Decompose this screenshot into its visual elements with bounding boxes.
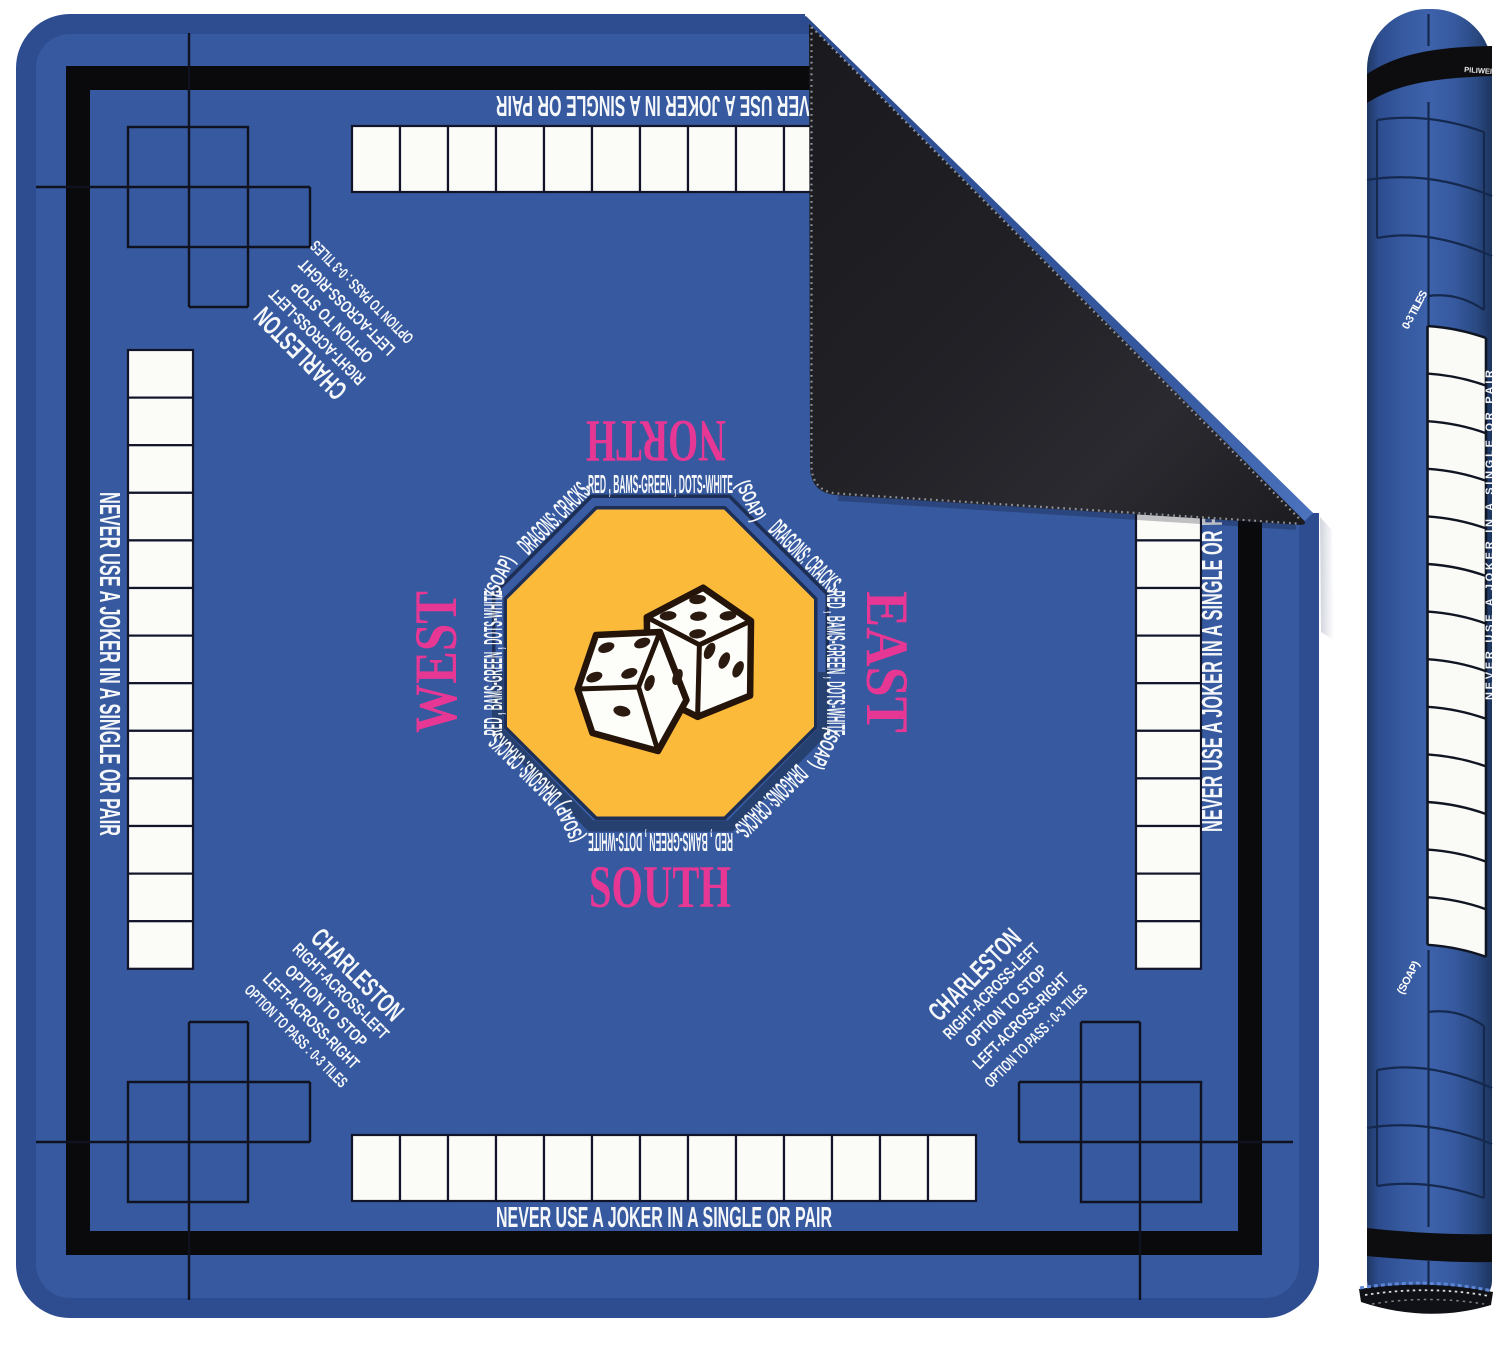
svg-text:0-3 TILES: 0-3 TILES: [1400, 289, 1430, 332]
svg-text:(SOAP): (SOAP): [1395, 959, 1423, 997]
